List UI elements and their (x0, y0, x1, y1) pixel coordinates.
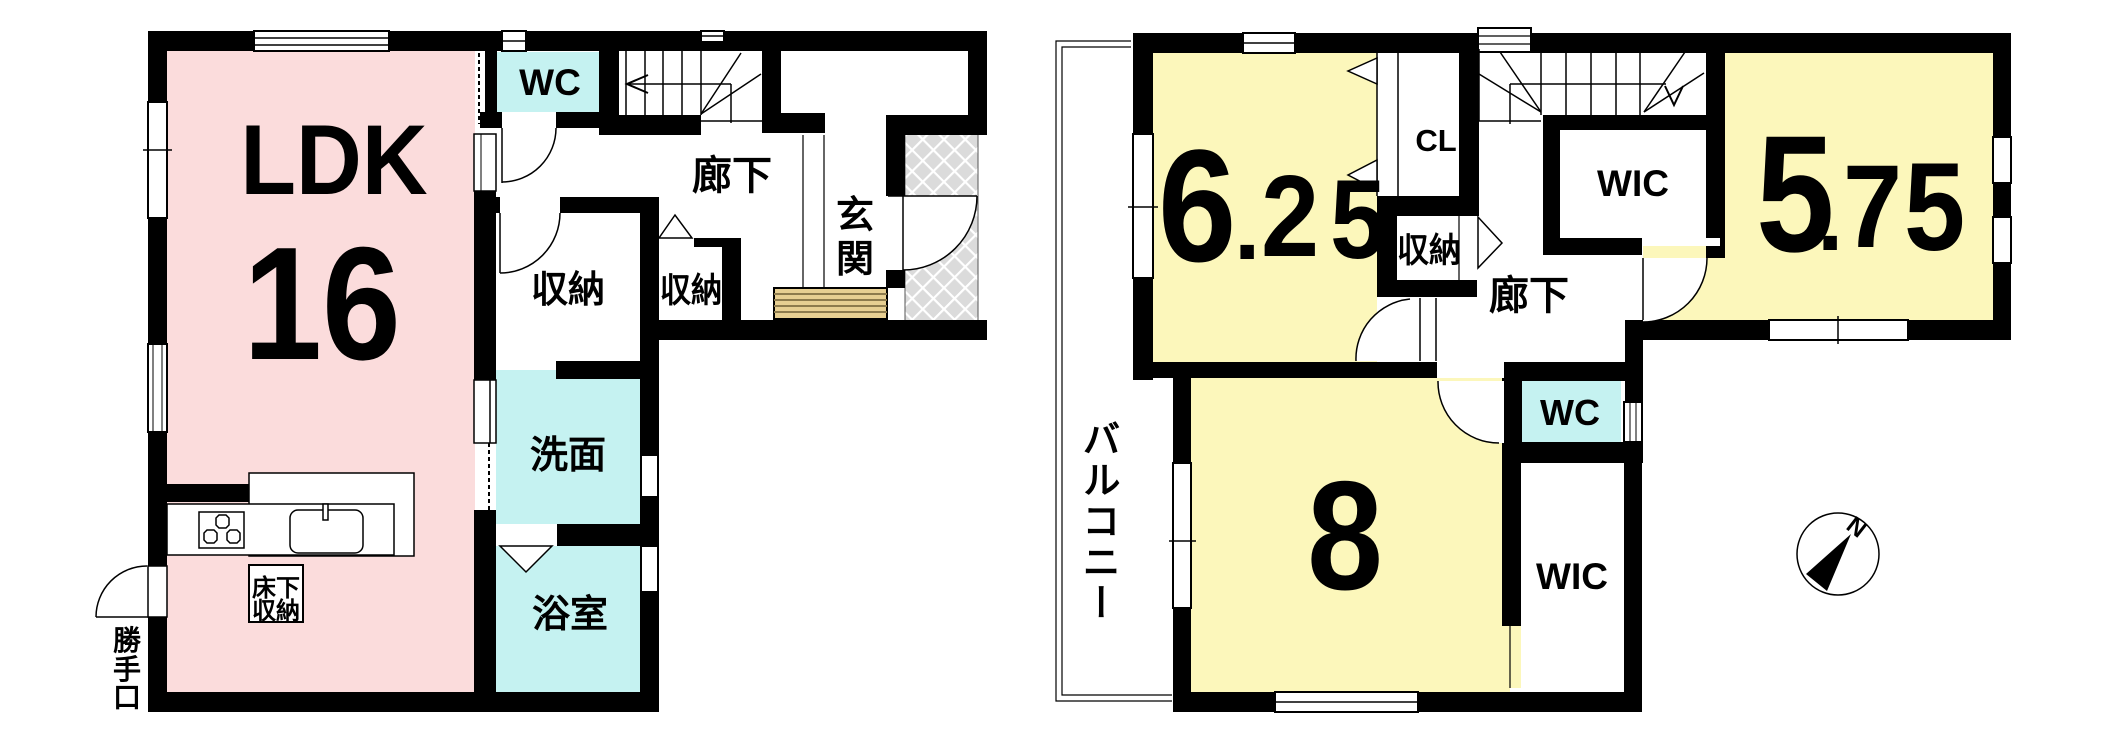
svg-text:収納: 収納 (660, 271, 723, 310)
svg-text:収納: 収納 (531, 269, 605, 310)
svg-text:5: 5 (1330, 157, 1386, 282)
svg-text:手: 手 (113, 654, 141, 685)
svg-text:7: 7 (1843, 140, 1902, 272)
svg-text:WIC: WIC (1597, 163, 1669, 204)
svg-text:口: 口 (113, 682, 141, 713)
svg-text:勝: 勝 (113, 625, 142, 656)
svg-text:収納: 収納 (252, 597, 300, 625)
svg-text:.: . (1817, 165, 1843, 271)
svg-text:関: 関 (836, 239, 874, 281)
svg-text:廊下: 廊下 (692, 154, 772, 198)
svg-text:洗面: 洗面 (530, 435, 606, 477)
svg-text:CL: CL (1415, 123, 1456, 158)
svg-text:WC: WC (519, 62, 581, 103)
svg-text:廊下: 廊下 (1489, 274, 1569, 318)
svg-text:2: 2 (1261, 152, 1319, 281)
svg-text:バルコニー: バルコニー (1076, 419, 1119, 624)
svg-text:WC: WC (1540, 392, 1600, 433)
svg-text:6: 6 (1158, 117, 1236, 295)
svg-text:8: 8 (1307, 449, 1383, 622)
svg-text:LDK: LDK (240, 106, 427, 216)
svg-text:.: . (1234, 174, 1260, 280)
svg-text:16: 16 (243, 215, 401, 394)
svg-text:WIC: WIC (1536, 556, 1608, 597)
svg-text:玄: 玄 (836, 195, 874, 237)
svg-text:浴室: 浴室 (532, 593, 608, 636)
svg-text:収納: 収納 (1397, 231, 1461, 269)
svg-text:5: 5 (1904, 136, 1965, 276)
